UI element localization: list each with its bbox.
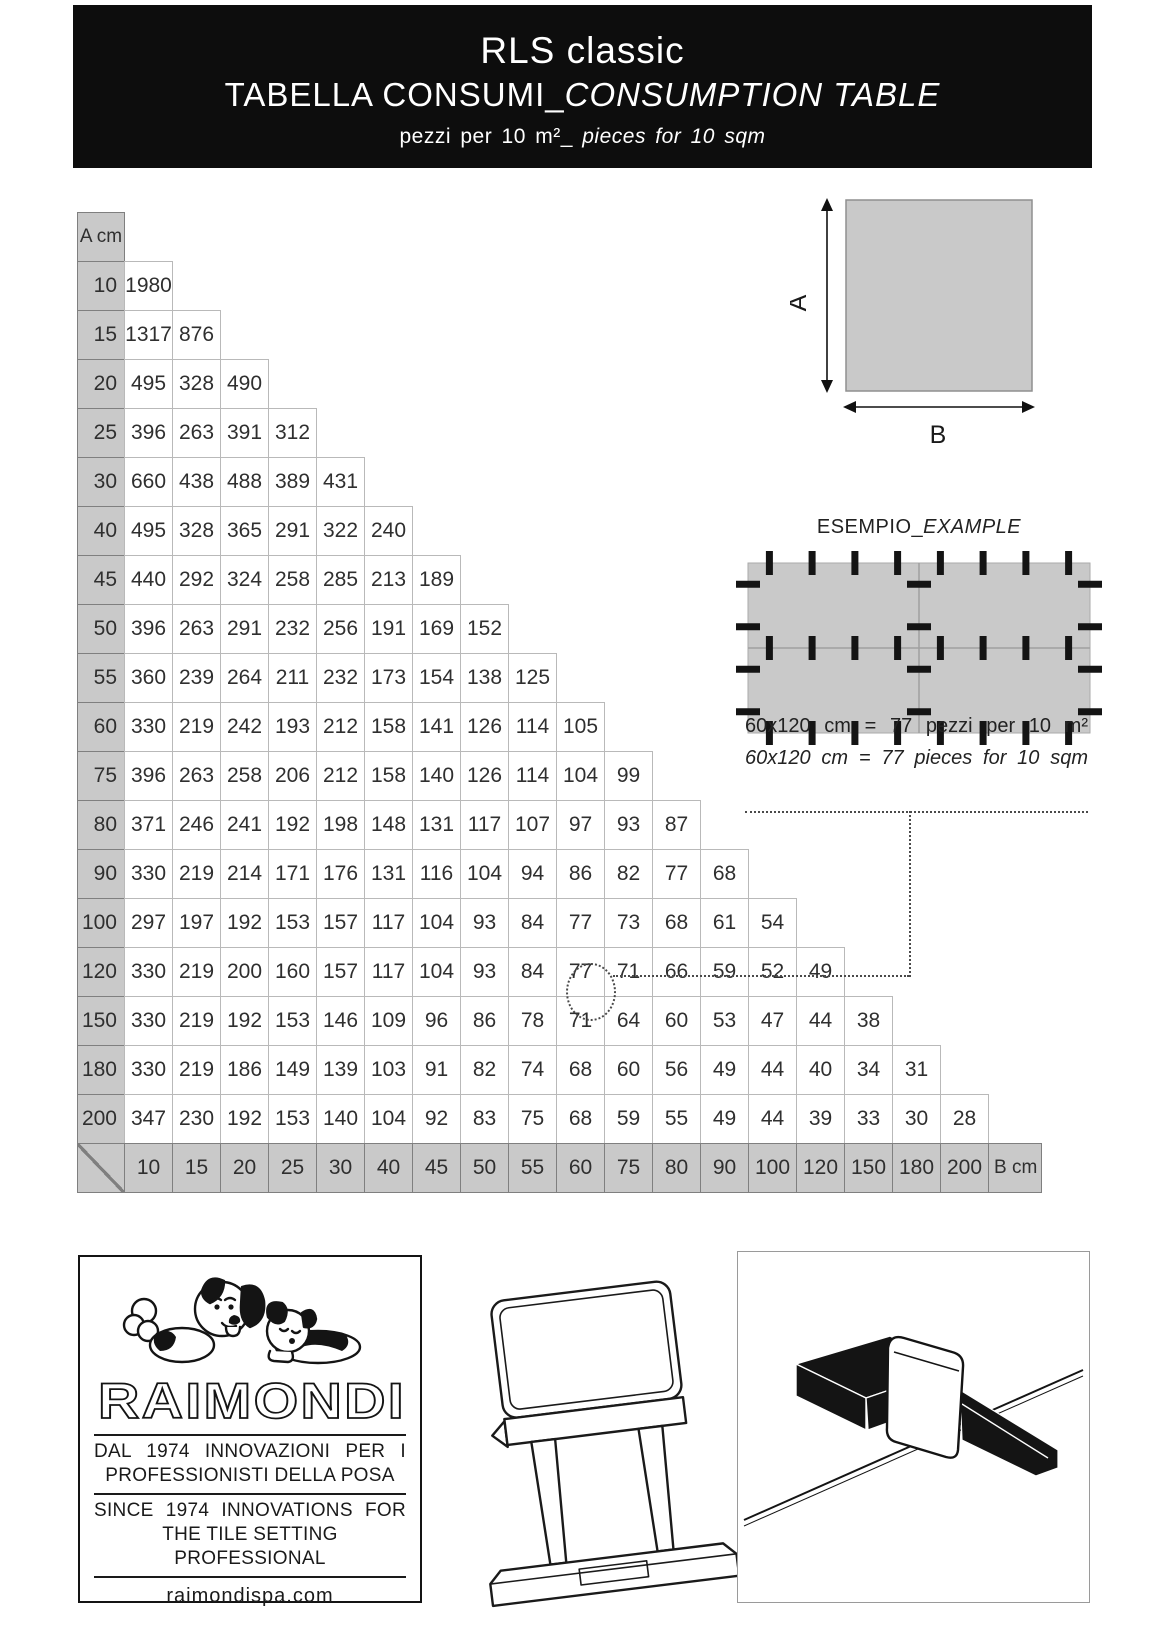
value-cell: 219 [172, 1045, 221, 1095]
value-cell: 38 [844, 996, 893, 1046]
row-label-cell: 30 [77, 457, 125, 507]
value-cell: 55 [652, 1094, 701, 1144]
divider [94, 1576, 406, 1578]
product-title: RLS classic [73, 29, 1092, 73]
value-cell: 104 [364, 1094, 413, 1144]
table-row: 1203302192001601571171049384777166595249 [78, 947, 1042, 997]
col-header-cell: 100 [748, 1143, 797, 1193]
value-cell: 230 [172, 1094, 221, 1144]
value-cell: 104 [412, 898, 461, 948]
value-cell: 66 [652, 947, 701, 997]
col-header-cell: 180 [892, 1143, 941, 1193]
value-cell: 140 [316, 1094, 365, 1144]
row-label-cell: 45 [77, 555, 125, 605]
leveling-clip-drawing [448, 1260, 740, 1648]
clip-mark [809, 636, 816, 660]
value-cell: 292 [172, 555, 221, 605]
value-cell: 97 [556, 800, 605, 850]
label-a: A [790, 294, 812, 311]
value-cell: 103 [364, 1045, 413, 1095]
units-note-en: pieces for 10 sqm [582, 125, 765, 148]
value-cell: 104 [460, 849, 509, 899]
value-cell: 328 [172, 359, 221, 409]
value-cell: 365 [220, 506, 269, 556]
clip-mark [1065, 636, 1072, 660]
clip-mark [1022, 551, 1029, 575]
value-cell: 68 [652, 898, 701, 948]
value-cell: 328 [172, 506, 221, 556]
value-cell: 94 [508, 849, 557, 899]
table-row: 1803302191861491391039182746860564944403… [78, 1045, 1042, 1095]
website-url: raimondispa.com [94, 1585, 406, 1608]
value-cell: 330 [124, 702, 173, 752]
value-cell: 74 [508, 1045, 557, 1095]
value-cell: 169 [412, 604, 461, 654]
raimondi-dogs-logo [120, 1269, 380, 1373]
value-cell: 117 [364, 898, 413, 948]
col-header-cell: 60 [556, 1143, 605, 1193]
row-label-cell: 20 [77, 359, 125, 409]
dog2-paws [269, 1351, 293, 1362]
col-header-cell: 45 [412, 1143, 461, 1193]
value-cell: 173 [364, 653, 413, 703]
value-cell: 193 [268, 702, 317, 752]
value-cell: 153 [268, 1094, 317, 1144]
table-title-it: TABELLA CONSUMI_ [225, 76, 565, 113]
clip-mark [1078, 623, 1102, 630]
units-note: pezzi per 10 m²_ pieces for 10 sqm [73, 125, 1092, 149]
clip-mark [736, 666, 760, 673]
value-cell: 232 [268, 604, 317, 654]
value-cell: 92 [412, 1094, 461, 1144]
value-cell: 39 [796, 1094, 845, 1144]
example-caption: 60x120 cm = 77 pezzi per 10 m² 60x120 cm… [745, 710, 1088, 774]
value-cell: 192 [220, 996, 269, 1046]
value-cell: 44 [748, 1045, 797, 1095]
value-cell: 312 [268, 408, 317, 458]
value-cell: 192 [220, 898, 269, 948]
value-cell: 86 [556, 849, 605, 899]
tagline-english-line1: SINCE 1974 INNOVATIONS FOR [94, 1499, 406, 1523]
value-cell: 126 [460, 702, 509, 752]
col-header-cell: 30 [316, 1143, 365, 1193]
value-cell: 77 [652, 849, 701, 899]
example-title-en: EXAMPLE [923, 516, 1021, 538]
header-banner: RLS classic TABELLA CONSUMI_CONSUMPTION … [73, 5, 1092, 168]
value-cell: 206 [268, 751, 317, 801]
clip-mark [980, 636, 987, 660]
row-label-cell: 90 [77, 849, 125, 899]
diagonal-corner-cell [77, 1143, 125, 1193]
col-header-cell: 20 [220, 1143, 269, 1193]
value-cell: 49 [700, 1094, 749, 1144]
clip-wedge-drawing [738, 1252, 1089, 1602]
value-cell: 154 [412, 653, 461, 703]
value-cell: 153 [268, 996, 317, 1046]
value-cell: 285 [316, 555, 365, 605]
value-cell: 68 [700, 849, 749, 899]
tile-shape [846, 200, 1032, 391]
value-cell: 83 [460, 1094, 509, 1144]
clip-mark [809, 551, 816, 575]
col-header-cell: 90 [700, 1143, 749, 1193]
value-cell: 214 [220, 849, 269, 899]
value-cell: 86 [460, 996, 509, 1046]
value-cell: 82 [460, 1045, 509, 1095]
value-cell: 28 [940, 1094, 989, 1144]
clip-mark [851, 636, 858, 660]
table-row: 30660438488389431 [78, 457, 1042, 507]
wedge-example-box [737, 1251, 1090, 1603]
dog2-ear-left [267, 1302, 286, 1323]
value-cell: 104 [556, 751, 605, 801]
table-row: 10029719719215315711710493847773686154 [78, 898, 1042, 948]
value-cell: 47 [748, 996, 797, 1046]
clip-flag [490, 1280, 683, 1419]
value-cell: 131 [364, 849, 413, 899]
value-cell: 146 [316, 996, 365, 1046]
value-cell: 330 [124, 1045, 173, 1095]
row-label-cell: 80 [77, 800, 125, 850]
col-header-cell: 50 [460, 1143, 509, 1193]
value-cell: 82 [604, 849, 653, 899]
value-cell: 84 [508, 898, 557, 948]
value-cell: 396 [124, 751, 173, 801]
clip-mark [1078, 666, 1102, 673]
table-row: 1015202530404550556075809010012015018020… [78, 1143, 1042, 1193]
value-cell: 131 [412, 800, 461, 850]
value-cell: 347 [124, 1094, 173, 1144]
value-cell: 140 [412, 751, 461, 801]
clip-mark [736, 623, 760, 630]
clip-mark [937, 551, 944, 575]
value-cell: 59 [700, 947, 749, 997]
table-row: 2003472301921531401049283756859554944393… [78, 1094, 1042, 1144]
value-cell: 157 [316, 898, 365, 948]
value-cell: 438 [172, 457, 221, 507]
row-label-cell: 50 [77, 604, 125, 654]
col-header-cell: 120 [796, 1143, 845, 1193]
row-label-cell: 60 [77, 702, 125, 752]
dog2-ear-right [302, 1310, 316, 1327]
value-cell: 876 [172, 310, 221, 360]
table-row: 903302192141711761311161049486827768 [78, 849, 1042, 899]
tagline-italian-line1: DAL 1974 INNOVAZIONI PER I [94, 1440, 406, 1464]
value-cell: 149 [268, 1045, 317, 1095]
value-cell: 91 [412, 1045, 461, 1095]
clip-mark [907, 666, 931, 673]
row-label-cell: 100 [77, 898, 125, 948]
table-row: 1503302191921531461099686787164605347443… [78, 996, 1042, 1046]
value-cell: 239 [172, 653, 221, 703]
value-cell: 141 [412, 702, 461, 752]
value-cell: 191 [364, 604, 413, 654]
value-cell: 125 [508, 653, 557, 703]
tagline-english: SINCE 1974 INNOVATIONS FOR THE TILE SETT… [94, 1499, 406, 1571]
a-axis-header-cell: A cm [77, 212, 125, 262]
row-label-cell: 75 [77, 751, 125, 801]
value-cell: 158 [364, 751, 413, 801]
value-cell: 263 [172, 408, 221, 458]
units-note-it: pezzi per 10 m²_ [400, 125, 583, 148]
value-cell: 52 [748, 947, 797, 997]
value-cell: 330 [124, 996, 173, 1046]
value-cell: 211 [268, 653, 317, 703]
value-cell: 93 [460, 947, 509, 997]
clip-mark [851, 551, 858, 575]
dog2-nose [289, 1338, 295, 1344]
value-cell: 197 [172, 898, 221, 948]
value-cell: 186 [220, 1045, 269, 1095]
value-cell: 495 [124, 359, 173, 409]
value-cell: 660 [124, 457, 173, 507]
clip-mark [937, 636, 944, 660]
value-cell: 495 [124, 506, 173, 556]
value-cell: 117 [364, 947, 413, 997]
value-cell: 264 [220, 653, 269, 703]
value-cell: 232 [316, 653, 365, 703]
value-cell: 60 [652, 996, 701, 1046]
value-cell: 241 [220, 800, 269, 850]
value-cell: 93 [460, 898, 509, 948]
value-cell: 152 [460, 604, 509, 654]
value-cell: 75 [508, 1094, 557, 1144]
row-label-cell: 200 [77, 1094, 125, 1144]
value-cell: 126 [460, 751, 509, 801]
divider [94, 1434, 406, 1436]
brand-box: RAIMONDI DAL 1974 INNOVAZIONI PER I PROF… [78, 1255, 422, 1603]
row-label-cell: 15 [77, 310, 125, 360]
value-cell: 34 [844, 1045, 893, 1095]
value-cell: 297 [124, 898, 173, 948]
value-cell: 53 [700, 996, 749, 1046]
value-cell: 105 [556, 702, 605, 752]
clip-mark [980, 551, 987, 575]
value-cell: 68 [556, 1045, 605, 1095]
col-header-cell: 15 [172, 1143, 221, 1193]
value-cell: 192 [220, 1094, 269, 1144]
value-cell: 49 [796, 947, 845, 997]
value-cell: 431 [316, 457, 365, 507]
value-cell: 490 [220, 359, 269, 409]
dog1-ear-right [241, 1286, 264, 1327]
value-cell: 389 [268, 457, 317, 507]
clip-mark [1022, 636, 1029, 660]
example-connector-top-line [745, 811, 1088, 813]
value-cell: 87 [652, 800, 701, 850]
value-cell: 1317 [124, 310, 173, 360]
clip-mark [894, 636, 901, 660]
clip-strap [887, 1337, 963, 1458]
value-cell: 219 [172, 947, 221, 997]
value-cell: 291 [220, 604, 269, 654]
clip-mark [736, 581, 760, 588]
value-cell: 68 [556, 1094, 605, 1144]
dog1-eye [214, 1304, 219, 1309]
value-cell: 153 [268, 898, 317, 948]
row-label-cell: 40 [77, 506, 125, 556]
value-cell: 219 [172, 996, 221, 1046]
value-cell: 263 [172, 604, 221, 654]
clip-leg-right [639, 1426, 678, 1552]
value-cell: 219 [172, 702, 221, 752]
example-connector-bottom-line [613, 975, 909, 977]
example-connector-vertical-line [909, 811, 911, 977]
row-label-cell: 180 [77, 1045, 125, 1095]
clip-mark [907, 581, 931, 588]
value-cell: 330 [124, 849, 173, 899]
value-cell: 198 [316, 800, 365, 850]
value-cell: 31 [892, 1045, 941, 1095]
value-cell: 189 [412, 555, 461, 605]
value-cell: 117 [460, 800, 509, 850]
clip-mark [766, 636, 773, 660]
value-cell: 391 [220, 408, 269, 458]
value-cell: 44 [748, 1094, 797, 1144]
b-axis-header-cell: B cm [988, 1143, 1042, 1193]
clip-mark [1078, 581, 1102, 588]
value-cell: 54 [748, 898, 797, 948]
value-cell: 246 [172, 800, 221, 850]
highlighted-value-ellipse [566, 963, 616, 1021]
value-cell: 99 [604, 751, 653, 801]
value-cell: 157 [316, 947, 365, 997]
value-cell: 330 [124, 947, 173, 997]
col-header-cell: 80 [652, 1143, 701, 1193]
value-cell: 291 [268, 506, 317, 556]
row-label-cell: 25 [77, 408, 125, 458]
raimondi-wordmark: RAIMONDI [94, 1373, 410, 1429]
dog1-eye [228, 1304, 233, 1309]
value-cell: 1980 [124, 261, 173, 311]
value-cell: 212 [316, 702, 365, 752]
example-caption-it: 60x120 cm = 77 pezzi per 10 m² [745, 710, 1088, 742]
value-cell: 96 [412, 996, 461, 1046]
col-header-cell: 55 [508, 1143, 557, 1193]
value-cell: 30 [892, 1094, 941, 1144]
value-cell: 60 [604, 1045, 653, 1095]
value-cell: 256 [316, 604, 365, 654]
value-cell: 116 [412, 849, 461, 899]
clip-leg-left [531, 1439, 570, 1565]
raimondi-wordmark-text: RAIMONDI [98, 1373, 406, 1429]
value-cell: 33 [844, 1094, 893, 1144]
value-cell: 324 [220, 555, 269, 605]
value-cell: 171 [268, 849, 317, 899]
value-cell: 242 [220, 702, 269, 752]
value-cell: 49 [700, 1045, 749, 1095]
clip-mark [907, 623, 931, 630]
value-cell: 219 [172, 849, 221, 899]
value-cell: 263 [172, 751, 221, 801]
col-header-cell: 150 [844, 1143, 893, 1193]
value-cell: 104 [412, 947, 461, 997]
value-cell: 93 [604, 800, 653, 850]
value-cell: 360 [124, 653, 173, 703]
page: RLS classic TABELLA CONSUMI_CONSUMPTION … [0, 0, 1166, 1650]
value-cell: 114 [508, 751, 557, 801]
tagline-italian-line2: PROFESSIONISTI DELLA POSA [94, 1464, 406, 1488]
clip-base [489, 1542, 739, 1606]
value-cell: 200 [220, 947, 269, 997]
value-cell: 488 [220, 457, 269, 507]
value-cell: 258 [220, 751, 269, 801]
example-title: ESEMPIO_EXAMPLE [748, 516, 1090, 539]
col-header-cell: 40 [364, 1143, 413, 1193]
example-title-it: ESEMPIO_ [817, 516, 923, 538]
value-cell: 240 [364, 506, 413, 556]
table-title-en: CONSUMPTION TABLE [565, 76, 941, 113]
clip-mark [766, 551, 773, 575]
value-cell: 192 [268, 800, 317, 850]
row-label-cell: 150 [77, 996, 125, 1046]
value-cell: 158 [364, 702, 413, 752]
value-cell: 56 [652, 1045, 701, 1095]
row-label-cell: 10 [77, 261, 125, 311]
value-cell: 44 [796, 996, 845, 1046]
value-cell: 258 [268, 555, 317, 605]
tile-dimension-diagram: A B [790, 193, 1046, 449]
value-cell: 213 [364, 555, 413, 605]
value-cell: 322 [316, 506, 365, 556]
value-cell: 59 [604, 1094, 653, 1144]
dimension-arrow-a [821, 198, 833, 393]
col-header-cell: 10 [124, 1143, 173, 1193]
value-cell: 40 [796, 1045, 845, 1095]
value-cell: 396 [124, 604, 173, 654]
value-cell: 148 [364, 800, 413, 850]
tagline-italian: DAL 1974 INNOVAZIONI PER I PROFESSIONIST… [94, 1440, 406, 1488]
value-cell: 139 [316, 1045, 365, 1095]
value-cell: 138 [460, 653, 509, 703]
dimension-arrow-b [843, 401, 1035, 413]
value-cell: 371 [124, 800, 173, 850]
row-label-cell: 120 [77, 947, 125, 997]
value-cell: 77 [556, 898, 605, 948]
value-cell: 176 [316, 849, 365, 899]
col-header-cell: 25 [268, 1143, 317, 1193]
value-cell: 84 [508, 947, 557, 997]
table-title: TABELLA CONSUMI_CONSUMPTION TABLE [73, 73, 1092, 117]
tagline-english-line2: THE TILE SETTING PROFESSIONAL [94, 1523, 406, 1571]
example-caption-en: 60x120 cm = 77 pieces for 10 sqm [745, 742, 1088, 774]
dog1-tongue [226, 1327, 240, 1336]
value-cell: 396 [124, 408, 173, 458]
value-cell: 73 [604, 898, 653, 948]
label-b: B [930, 421, 947, 449]
value-cell: 78 [508, 996, 557, 1046]
divider [94, 1493, 406, 1495]
clip-mark [1065, 551, 1072, 575]
value-cell: 114 [508, 702, 557, 752]
clip-mark [894, 551, 901, 575]
value-cell: 160 [268, 947, 317, 997]
row-label-cell: 55 [77, 653, 125, 703]
value-cell: 212 [316, 751, 365, 801]
value-cell: 109 [364, 996, 413, 1046]
value-cell: 107 [508, 800, 557, 850]
table-row: 80371246241192198148131117107979387 [78, 800, 1042, 850]
col-header-cell: 200 [940, 1143, 989, 1193]
col-header-cell: 75 [604, 1143, 653, 1193]
value-cell: 440 [124, 555, 173, 605]
value-cell: 61 [700, 898, 749, 948]
